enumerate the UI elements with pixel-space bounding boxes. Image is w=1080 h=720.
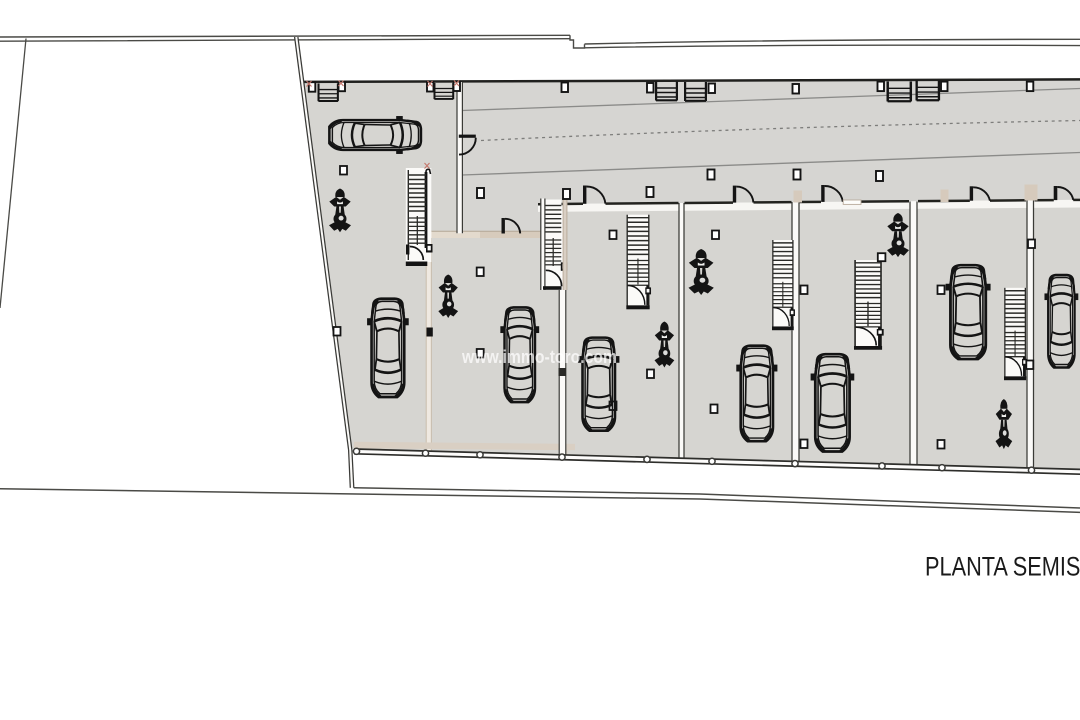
svg-text:PLANTA SEMISÓTANO: PLANTA SEMISÓTANO <box>925 552 1080 582</box>
svg-text:www.immo-toro.com: www.immo-toro.com <box>461 346 617 367</box>
